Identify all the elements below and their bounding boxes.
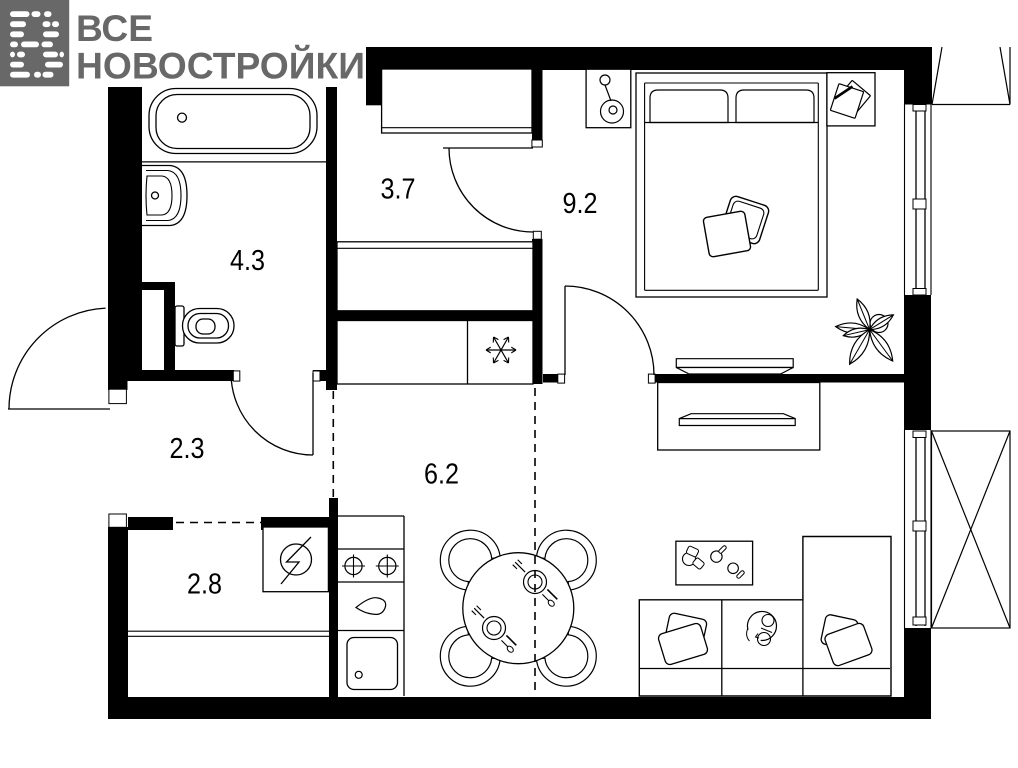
- svg-text:6.2: 6.2: [424, 459, 459, 491]
- svg-text:3.7: 3.7: [381, 174, 416, 206]
- svg-text:ВСЕ: ВСЕ: [76, 8, 153, 49]
- svg-text:НОВОСТРОЙКИ: НОВОСТРОЙКИ: [76, 45, 365, 87]
- svg-text:2.3: 2.3: [170, 433, 205, 465]
- svg-text:9.2: 9.2: [563, 188, 598, 220]
- svg-text:2.8: 2.8: [187, 569, 222, 601]
- svg-text:4.3: 4.3: [230, 245, 265, 277]
